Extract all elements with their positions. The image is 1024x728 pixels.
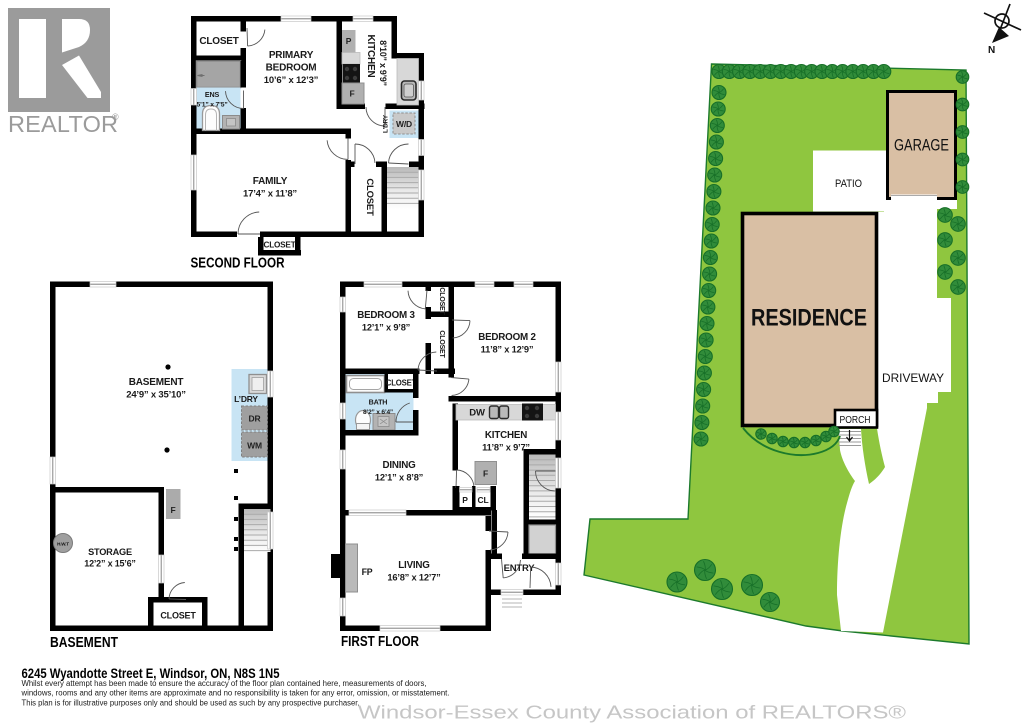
svg-text:KITCHEN: KITCHEN — [485, 430, 527, 441]
svg-text:Windsor-Essex County Associati: Windsor-Essex County Association of REAL… — [358, 702, 906, 723]
svg-text:CLOSET: CLOSET — [263, 241, 295, 250]
svg-text:P: P — [346, 36, 352, 46]
svg-text:W/D: W/D — [396, 119, 412, 129]
svg-text:F: F — [171, 505, 176, 515]
svg-text:CLOSET: CLOSET — [438, 287, 445, 315]
svg-text:REALTOR: REALTOR — [8, 111, 118, 137]
svg-text:PORCH: PORCH — [840, 414, 871, 426]
svg-text:11’8” x 12’9”: 11’8” x 12’9” — [481, 344, 534, 354]
svg-text:DRIVEWAY: DRIVEWAY — [882, 373, 944, 385]
svg-text:WM: WM — [247, 441, 262, 451]
svg-text:N: N — [988, 45, 995, 56]
svg-text:8’2” x 6’4”: 8’2” x 6’4” — [363, 409, 393, 416]
svg-text:DW: DW — [469, 408, 485, 419]
svg-text:BASEMENT: BASEMENT — [50, 635, 118, 651]
svg-text:Whilst every attempt has been: Whilst every attempt has been made to en… — [22, 679, 427, 688]
svg-text:SECOND FLOOR: SECOND FLOOR — [191, 256, 285, 272]
svg-text:12’1” x 8’8”: 12’1” x 8’8” — [375, 472, 423, 482]
svg-text:STORAGE: STORAGE — [88, 547, 132, 557]
svg-text:P: P — [462, 495, 468, 505]
svg-text:ENS: ENS — [205, 90, 220, 99]
svg-text:5’1” x 7’5”: 5’1” x 7’5” — [196, 102, 227, 109]
svg-text:CL: CL — [478, 495, 489, 505]
svg-text:F: F — [350, 89, 355, 99]
svg-text:FIRST FLOOR: FIRST FLOOR — [341, 634, 419, 650]
svg-text:LIVING: LIVING — [398, 560, 430, 571]
svg-text:L’DRY: L’DRY — [234, 394, 258, 404]
svg-text:CLOSET: CLOSET — [364, 178, 375, 216]
svg-text:BASEMENT: BASEMENT — [129, 377, 184, 388]
svg-text:DR: DR — [249, 414, 261, 424]
svg-text:PRIMARY: PRIMARY — [269, 50, 314, 61]
svg-text:KITCHEN: KITCHEN — [365, 34, 376, 77]
svg-text:CLOSET: CLOSET — [438, 330, 445, 358]
svg-text:12’1” x 9’8”: 12’1” x 9’8” — [362, 322, 410, 332]
svg-text:CLOSET: CLOSET — [160, 611, 196, 621]
svg-text:24’9” x 35’10”: 24’9” x 35’10” — [126, 390, 186, 401]
svg-text:BATH: BATH — [369, 398, 388, 407]
svg-text:BEDROOM 2: BEDROOM 2 — [478, 332, 536, 343]
svg-text:This plan is for illustrative: This plan is for illustrative purposes o… — [22, 698, 360, 707]
svg-text:®: ® — [112, 112, 119, 122]
svg-text:H.W.T: H.W.T — [57, 542, 69, 547]
svg-text:FAMILY: FAMILY — [253, 176, 288, 187]
svg-text:L’DRY: L’DRY — [383, 114, 390, 133]
svg-text:CLOSET: CLOSET — [386, 379, 417, 388]
svg-text:17’4” x 11’8”: 17’4” x 11’8” — [243, 189, 297, 200]
svg-text:PATIO: PATIO — [835, 178, 862, 190]
svg-text:BEDROOM: BEDROOM — [266, 63, 317, 74]
svg-text:8’10” x 9’9”: 8’10” x 9’9” — [378, 40, 388, 86]
svg-text:DINING: DINING — [382, 460, 416, 471]
svg-text:BEDROOM 3: BEDROOM 3 — [357, 310, 415, 321]
svg-text:CLOSET: CLOSET — [199, 36, 238, 47]
svg-text:windows, rooms and any other i: windows, rooms and any other items are a… — [21, 689, 450, 698]
svg-text:10’6” x 12’3”: 10’6” x 12’3” — [264, 75, 319, 86]
svg-text:11’8” x 9’7”: 11’8” x 9’7” — [482, 442, 530, 452]
svg-text:RESIDENCE: RESIDENCE — [751, 305, 867, 332]
svg-text:F: F — [483, 469, 488, 479]
svg-text:16’8” x 12’7”: 16’8” x 12’7” — [387, 572, 440, 582]
svg-text:12’2” x 15’6”: 12’2” x 15’6” — [84, 559, 135, 569]
svg-text:GARAGE: GARAGE — [894, 137, 949, 155]
svg-text:FP: FP — [362, 567, 373, 577]
